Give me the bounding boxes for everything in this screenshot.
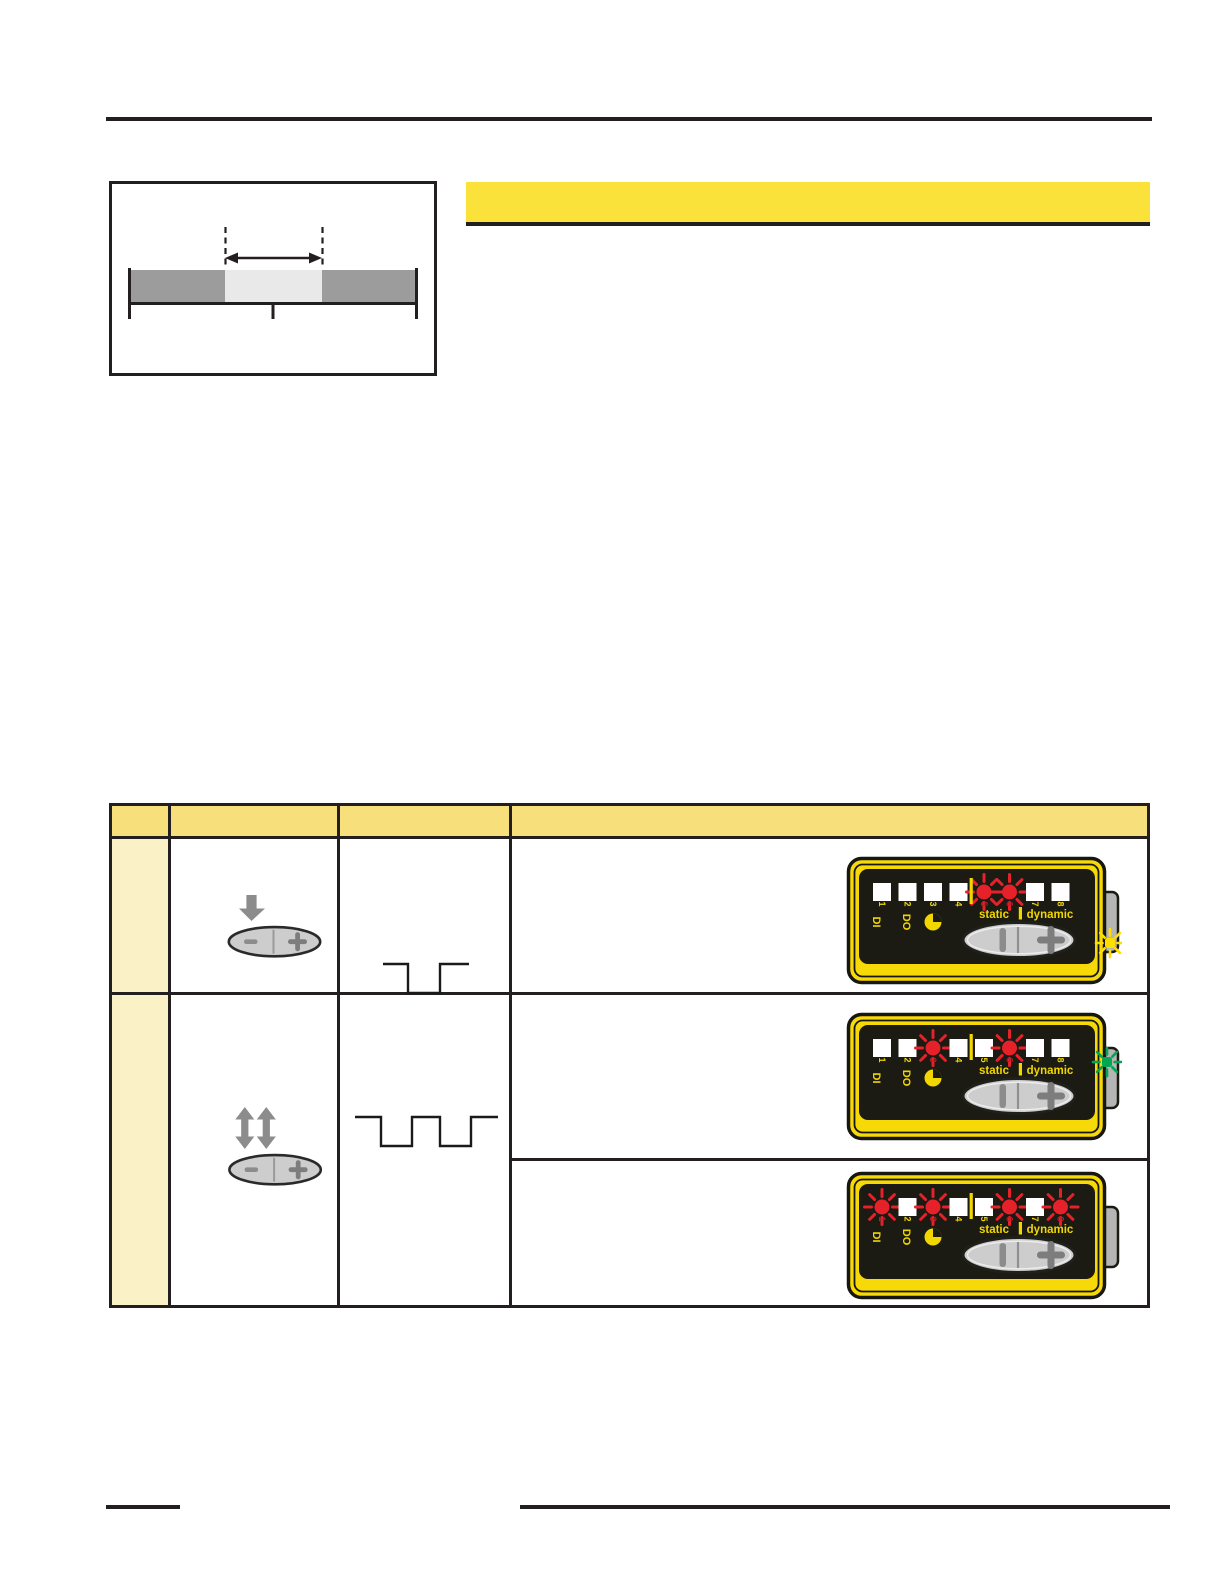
svg-text:6: 6 bbox=[1005, 901, 1015, 906]
top-horizontal-rule bbox=[106, 117, 1152, 121]
svg-text:dynamic: dynamic bbox=[1027, 909, 1074, 921]
svg-text:3: 3 bbox=[928, 1216, 938, 1221]
svg-text:2: 2 bbox=[903, 1216, 913, 1221]
svg-text:5: 5 bbox=[979, 901, 989, 906]
svg-text:4: 4 bbox=[954, 901, 964, 906]
svg-text:3: 3 bbox=[928, 901, 938, 906]
sensing-range-diagram bbox=[109, 181, 437, 376]
table-row-divider bbox=[109, 992, 1150, 995]
indicator-device-leds-1-3-6-8: 12345678staticdynamicDIDO bbox=[846, 1171, 1122, 1302]
svg-text:3: 3 bbox=[928, 1057, 938, 1062]
svg-text:4: 4 bbox=[954, 1057, 964, 1062]
table-border-right bbox=[1147, 803, 1150, 1308]
table-border-left bbox=[109, 803, 112, 1308]
svg-text:1: 1 bbox=[877, 901, 887, 906]
svg-text:2: 2 bbox=[903, 1057, 913, 1062]
svg-text:DO: DO bbox=[900, 1229, 912, 1246]
double-pulse-waveform bbox=[350, 1113, 503, 1150]
svg-text:6: 6 bbox=[1005, 1057, 1015, 1062]
table-col-divider-2 bbox=[337, 803, 340, 1308]
table-border-top bbox=[109, 803, 1150, 806]
svg-text:7: 7 bbox=[1030, 1216, 1040, 1221]
settings-table: 12345678staticdynamicDIDO 12345678static… bbox=[109, 803, 1150, 1308]
table-header-row bbox=[112, 806, 1147, 838]
svg-text:5: 5 bbox=[979, 1216, 989, 1221]
table-header-divider bbox=[109, 836, 1150, 839]
svg-text:dynamic: dynamic bbox=[1027, 1065, 1074, 1077]
svg-text:DO: DO bbox=[900, 914, 912, 931]
svg-text:7: 7 bbox=[1030, 1057, 1040, 1062]
table-col-divider-1 bbox=[168, 803, 171, 1308]
svg-text:8: 8 bbox=[1056, 1057, 1066, 1062]
single-pulse-waveform bbox=[378, 960, 474, 997]
indicator-device-leds-3-6: 12345678staticdynamicDIDO bbox=[846, 1012, 1122, 1143]
svg-text:7: 7 bbox=[1030, 901, 1040, 906]
section-heading-bar bbox=[466, 182, 1150, 226]
press-down-minus-plus-button-icon bbox=[225, 890, 322, 965]
table-subrow-divider bbox=[509, 1158, 1150, 1161]
svg-text:1: 1 bbox=[877, 1057, 887, 1062]
svg-text:static: static bbox=[979, 1065, 1010, 1077]
svg-text:DI: DI bbox=[870, 1073, 882, 1084]
svg-text:2: 2 bbox=[903, 901, 913, 906]
svg-text:8: 8 bbox=[1056, 1216, 1066, 1221]
svg-text:5: 5 bbox=[979, 1057, 989, 1062]
svg-text:8: 8 bbox=[1056, 901, 1066, 906]
svg-text:static: static bbox=[979, 1224, 1010, 1236]
svg-text:static: static bbox=[979, 909, 1010, 921]
footer-rule-right bbox=[520, 1505, 1170, 1509]
svg-text:DI: DI bbox=[870, 917, 882, 928]
svg-text:4: 4 bbox=[954, 1216, 964, 1221]
footer-rule-left bbox=[106, 1505, 180, 1509]
svg-text:DO: DO bbox=[900, 1070, 912, 1087]
svg-text:DI: DI bbox=[870, 1232, 882, 1243]
document-page: 12345678staticdynamicDIDO 12345678static… bbox=[0, 0, 1224, 1584]
indicator-device-leds-5-6: 12345678staticdynamicDIDO bbox=[846, 856, 1122, 987]
svg-text:6: 6 bbox=[1005, 1216, 1015, 1221]
svg-text:1: 1 bbox=[877, 1216, 887, 1221]
svg-text:dynamic: dynamic bbox=[1027, 1224, 1074, 1236]
table-border-bottom bbox=[109, 1305, 1150, 1308]
row-label-column bbox=[112, 838, 169, 1305]
table-col-divider-3 bbox=[509, 803, 512, 1308]
toggle-up-down-minus-plus-button-icon bbox=[225, 1100, 322, 1190]
